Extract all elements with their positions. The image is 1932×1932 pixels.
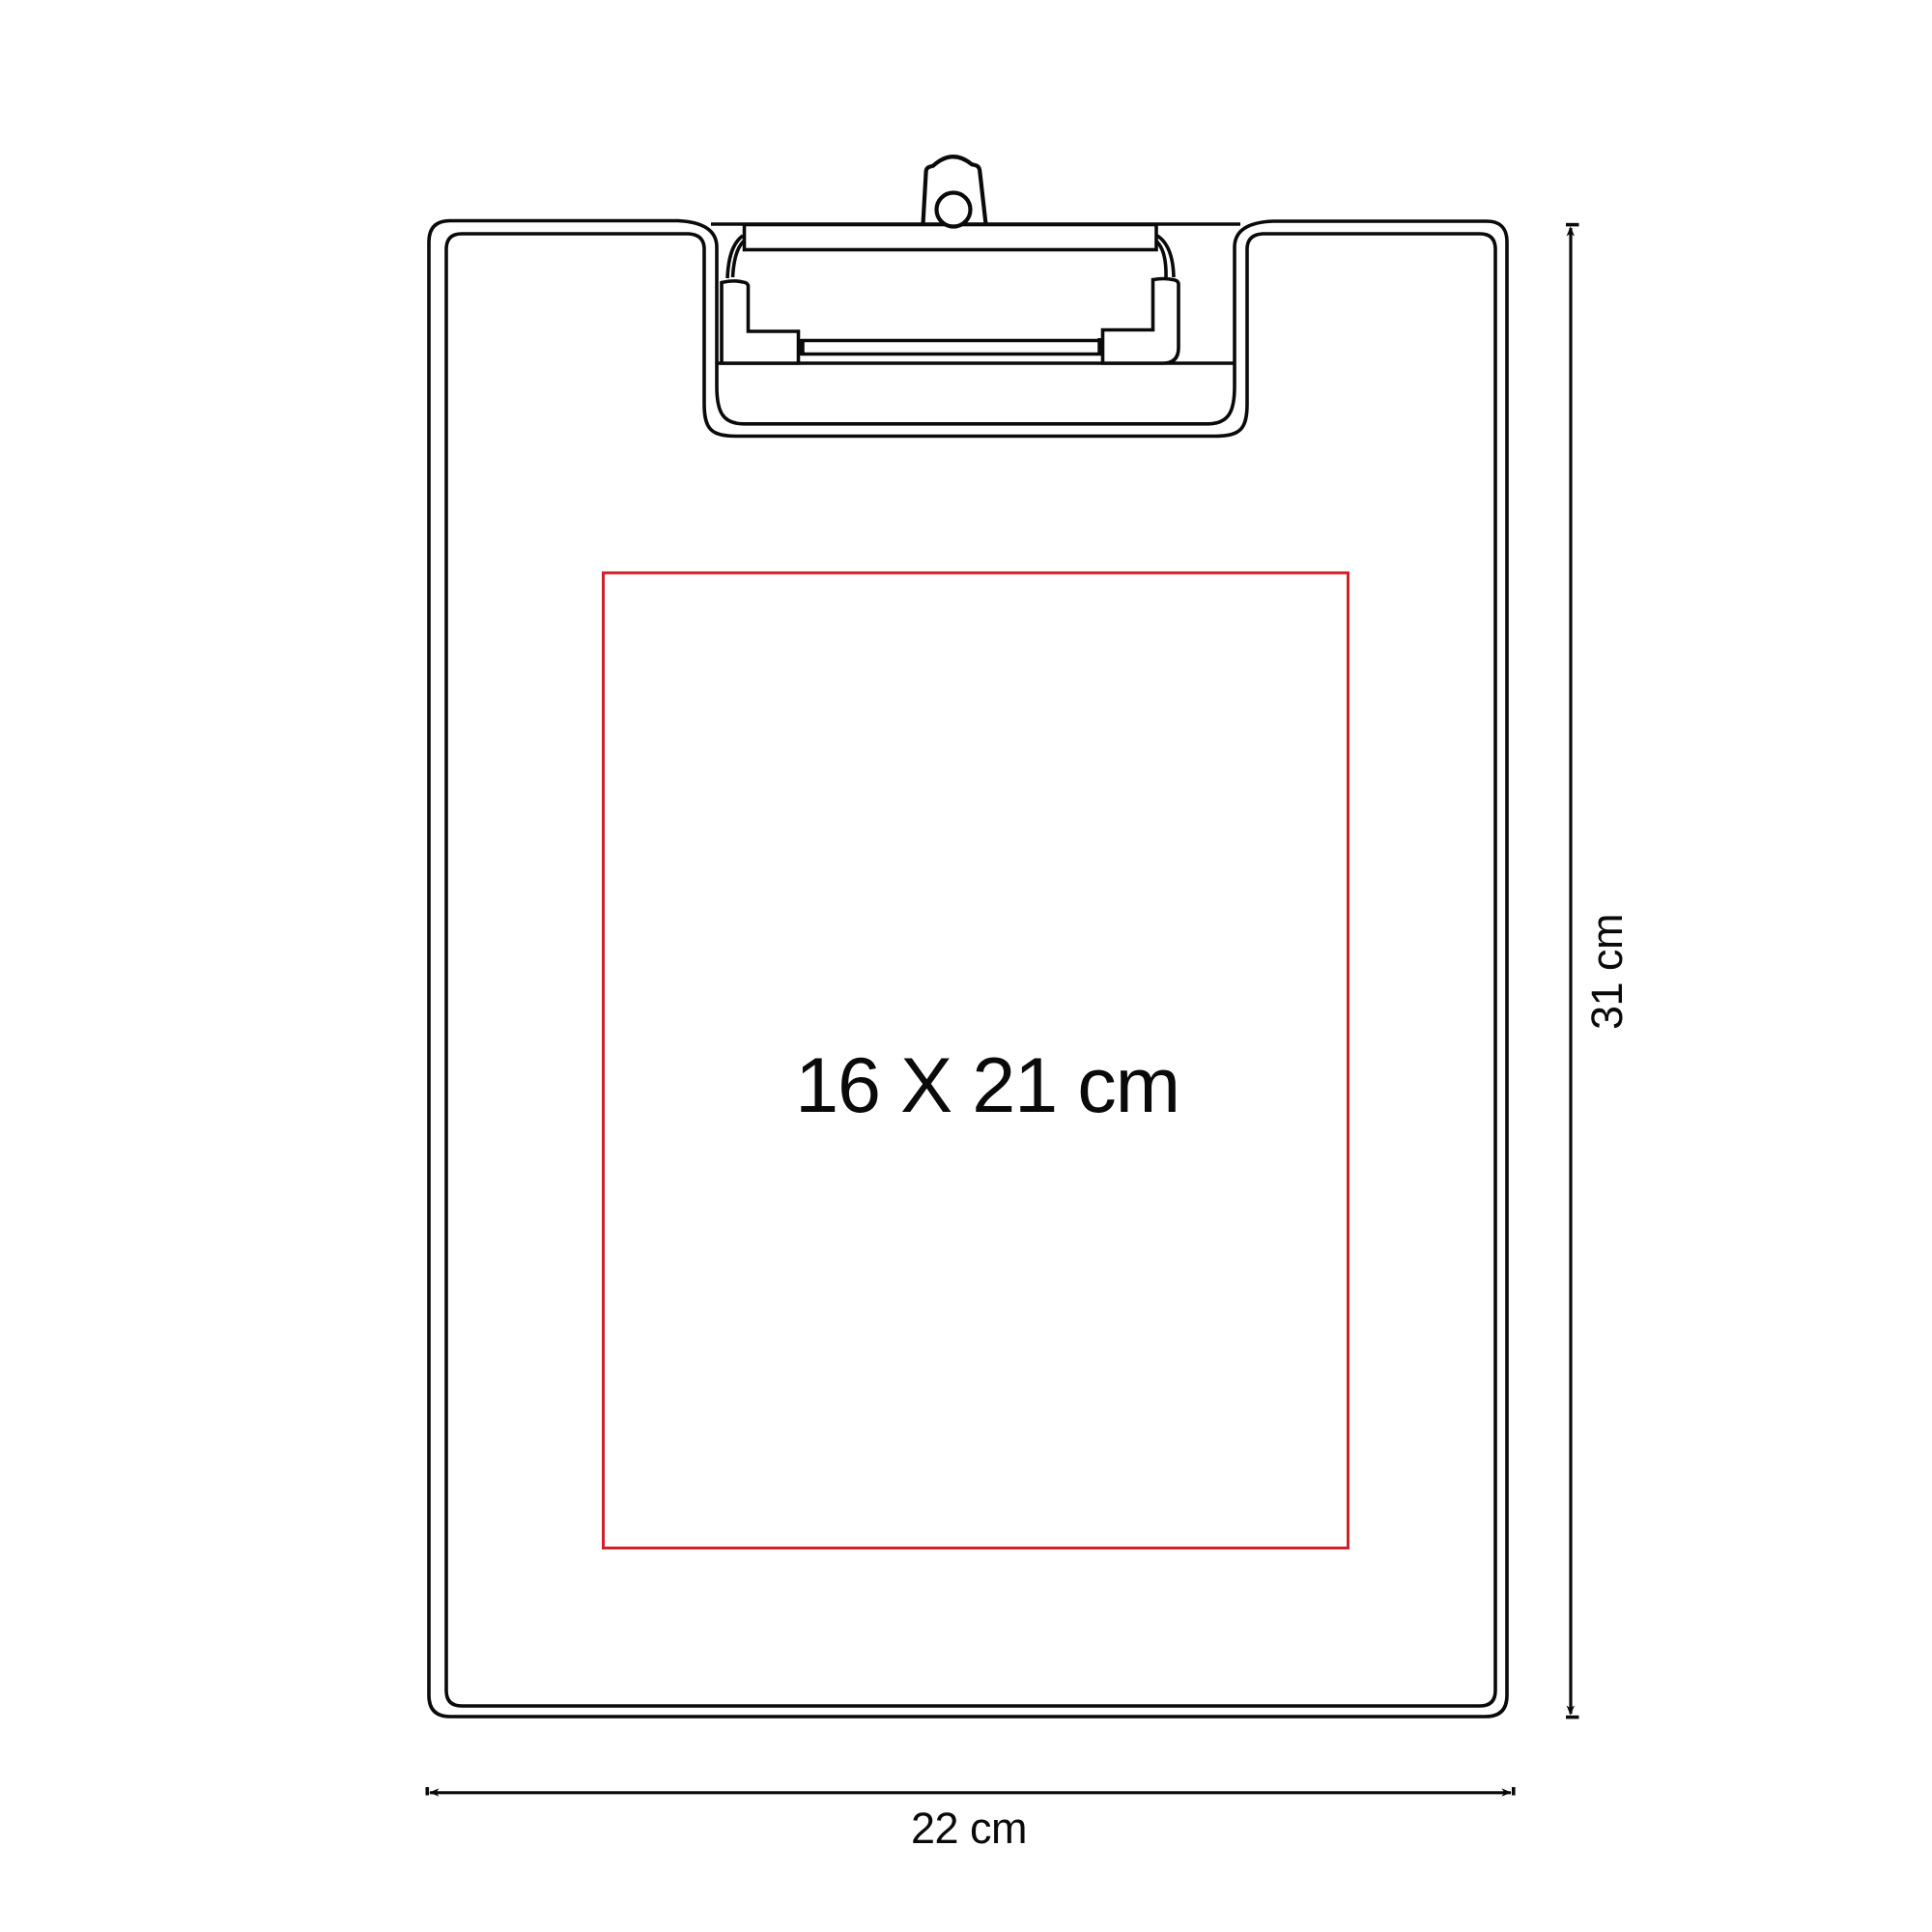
svg-text:22 cm: 22 cm [911, 1804, 1027, 1853]
svg-text:31 cm: 31 cm [1582, 914, 1632, 1030]
svg-text:16 X 21 cm: 16 X 21 cm [795, 1042, 1179, 1129]
